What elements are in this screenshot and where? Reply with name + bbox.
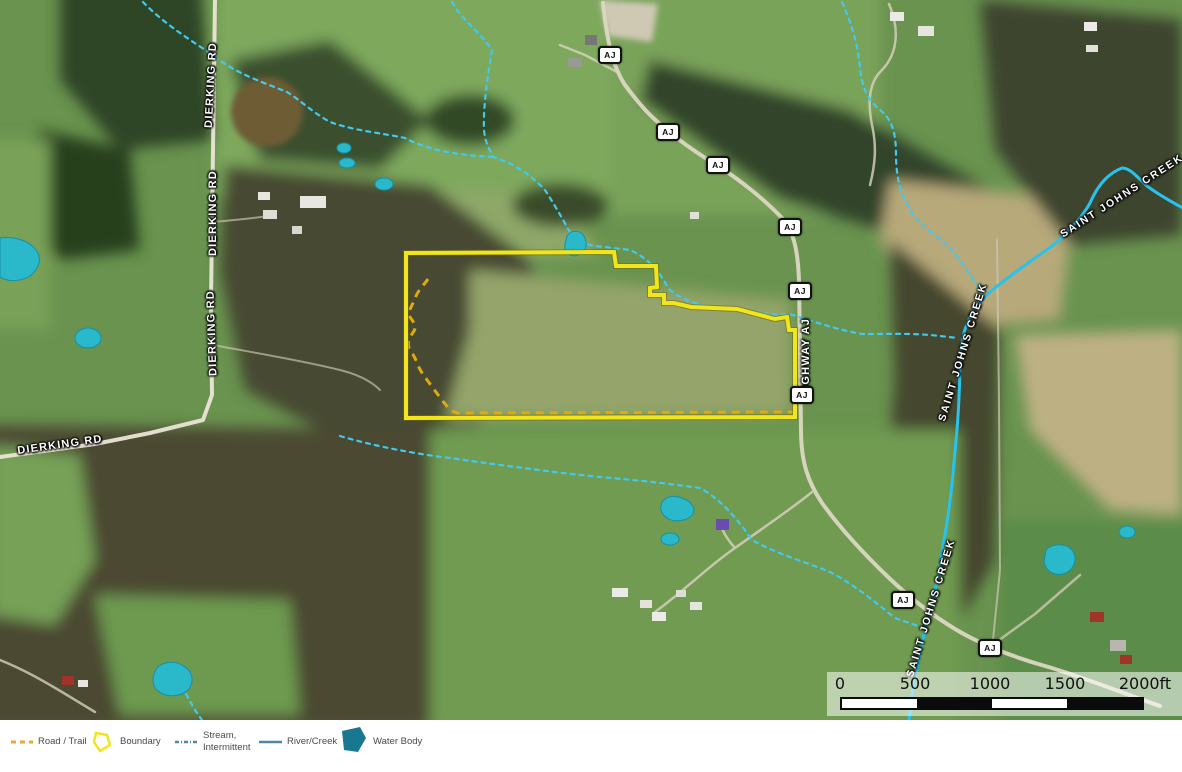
scale-tick-label: 500 [900, 674, 931, 693]
legend-label: Stream, [203, 730, 236, 741]
boundary-icon [91, 720, 113, 772]
scale-tick-label: 2000ft [1119, 674, 1171, 693]
water-body [1119, 526, 1135, 538]
scale-bar-segments [840, 697, 1144, 710]
water-body [153, 662, 192, 696]
scale-tick-label: 1500 [1045, 674, 1086, 693]
water-body [75, 328, 101, 348]
map-legend: Road / Trail Boundary Stream, Intermitte… [0, 720, 1182, 772]
satellite-canvas [0, 0, 1182, 720]
legend-item-water-body: Water Body [339, 720, 369, 772]
scale-tick-label: 0 [835, 674, 845, 693]
legend-item-river-creek: River/Creek [258, 720, 283, 772]
legend-label: Intermittent [203, 742, 251, 753]
river-creek-icon [258, 720, 283, 772]
water-body-icon [339, 720, 369, 772]
legend-item-road-trail: Road / Trail [10, 720, 34, 772]
legend-label: Water Body [373, 736, 422, 747]
water-body [339, 158, 355, 168]
map-screenshot: DIERKING RDDIERKING RDDIERKING RDDIERKIN… [0, 0, 1182, 772]
road-trail-icon [10, 720, 34, 772]
satellite-imagery [0, 0, 1182, 720]
legend-item-stream-intermittent: Stream, Intermittent [174, 720, 200, 772]
legend-item-boundary: Boundary [91, 720, 113, 772]
water-body [337, 143, 351, 153]
water-body [1044, 545, 1075, 575]
water-body [661, 533, 679, 545]
legend-label: Road / Trail [38, 736, 87, 747]
legend-label: River/Creek [287, 736, 337, 747]
scale-tick-label: 1000 [970, 674, 1011, 693]
map-view[interactable]: DIERKING RDDIERKING RDDIERKING RDDIERKIN… [0, 0, 1182, 720]
legend-label: Boundary [120, 736, 161, 747]
scale-bar: 0 500 1000 1500 2000ft [827, 672, 1182, 716]
stream-intermittent-icon [174, 720, 200, 772]
water-body [375, 178, 393, 190]
